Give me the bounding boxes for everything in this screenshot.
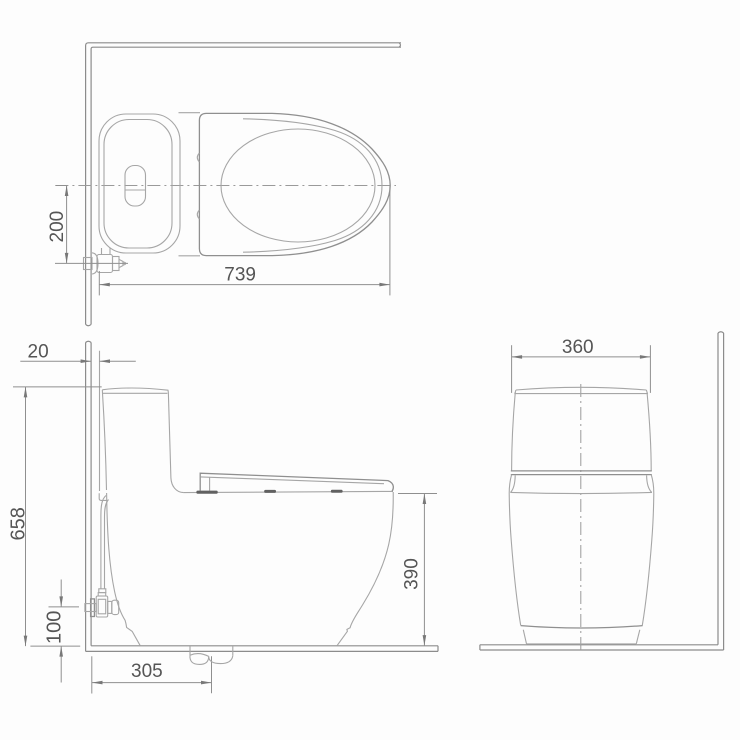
svg-text:658: 658	[8, 507, 30, 540]
svg-text:20: 20	[28, 341, 49, 362]
svg-text:305: 305	[131, 661, 163, 682]
svg-text:390: 390	[402, 558, 423, 590]
svg-text:100: 100	[43, 611, 65, 644]
svg-text:739: 739	[224, 264, 256, 285]
svg-text:200: 200	[47, 211, 68, 243]
svg-text:360: 360	[562, 337, 594, 358]
